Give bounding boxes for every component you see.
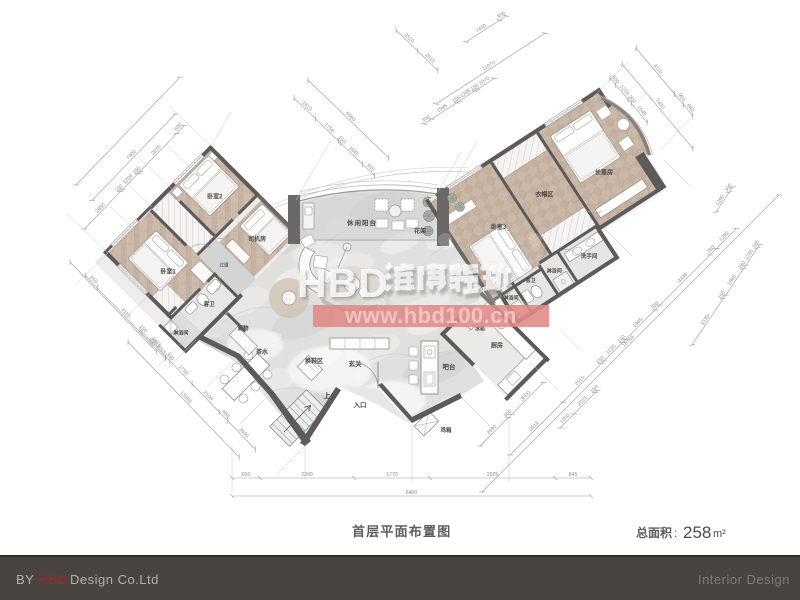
svg-text:1270: 1270 <box>618 84 630 97</box>
svg-text:首层平面布置图: 首层平面布置图 <box>352 524 451 539</box>
svg-text:卧室3: 卧室3 <box>491 223 507 231</box>
svg-text:660: 660 <box>220 409 230 419</box>
svg-text:Interior Design: Interior Design <box>698 572 790 587</box>
svg-text:1235: 1235 <box>744 249 755 262</box>
svg-text:淋浴间: 淋浴间 <box>547 267 562 274</box>
svg-text:11070: 11070 <box>481 60 496 73</box>
svg-text:过道: 过道 <box>219 261 228 268</box>
svg-text:950: 950 <box>676 92 686 103</box>
svg-text:客卫: 客卫 <box>203 300 216 308</box>
svg-text:鸡箱: 鸡箱 <box>439 426 452 434</box>
svg-text:茶水: 茶水 <box>255 348 269 356</box>
svg-text:HBD: HBD <box>38 572 68 587</box>
svg-text:3330: 3330 <box>700 314 711 327</box>
svg-text:厨房: 厨房 <box>491 342 503 350</box>
svg-text:7430: 7430 <box>654 98 666 111</box>
svg-text:BY: BY <box>16 572 34 587</box>
svg-text:4110: 4110 <box>652 63 664 75</box>
svg-text:2200: 2200 <box>301 472 313 478</box>
svg-text:258: 258 <box>683 523 711 542</box>
svg-text:入口: 入口 <box>353 401 367 409</box>
svg-text:915: 915 <box>88 275 98 285</box>
svg-text:660: 660 <box>242 472 251 478</box>
svg-text:1390: 1390 <box>715 194 726 207</box>
svg-text:m²: m² <box>713 528 726 540</box>
svg-text:吧台: 吧台 <box>443 362 457 371</box>
svg-text:7430: 7430 <box>475 23 488 34</box>
svg-text:www.hbd100.cn: www.hbd100.cn <box>344 303 517 328</box>
svg-text:淋浴间: 淋浴间 <box>173 329 188 336</box>
svg-text:150: 150 <box>589 384 599 394</box>
svg-text:300: 300 <box>421 114 432 124</box>
svg-text:换鞋区: 换鞋区 <box>305 357 323 365</box>
svg-text:600: 600 <box>610 74 620 85</box>
svg-text:洗手间: 洗手间 <box>581 252 598 260</box>
svg-text::: : <box>674 526 677 540</box>
svg-text:300: 300 <box>650 300 660 310</box>
svg-text:卧室1: 卧室1 <box>160 268 176 276</box>
svg-text:衣帽区: 衣帽区 <box>535 191 553 199</box>
svg-text:13265: 13265 <box>178 390 192 405</box>
svg-text:客卫: 客卫 <box>525 277 536 284</box>
svg-text:600: 600 <box>173 122 183 132</box>
svg-text:8400: 8400 <box>406 490 418 496</box>
svg-text:花架: 花架 <box>414 227 426 235</box>
svg-text:1965: 1965 <box>726 274 737 287</box>
svg-text:940: 940 <box>685 103 695 114</box>
svg-text:司机房: 司机房 <box>248 235 266 243</box>
svg-text:HBD: HBD <box>297 260 389 306</box>
svg-text:长辈房: 长辈房 <box>595 169 613 177</box>
svg-text:350: 350 <box>706 244 716 254</box>
svg-text:1070: 1070 <box>478 76 491 87</box>
svg-text:1770: 1770 <box>386 472 398 478</box>
svg-text:卧室2: 卧室2 <box>207 193 223 201</box>
svg-text:915: 915 <box>365 163 375 173</box>
svg-text:休闲阳台: 休闲阳台 <box>346 218 377 227</box>
svg-text:845: 845 <box>569 472 578 478</box>
svg-text:总面积: 总面积 <box>636 525 672 540</box>
svg-text:Design Co.Ltd: Design Co.Ltd <box>70 572 159 587</box>
svg-text:1645: 1645 <box>635 105 647 118</box>
